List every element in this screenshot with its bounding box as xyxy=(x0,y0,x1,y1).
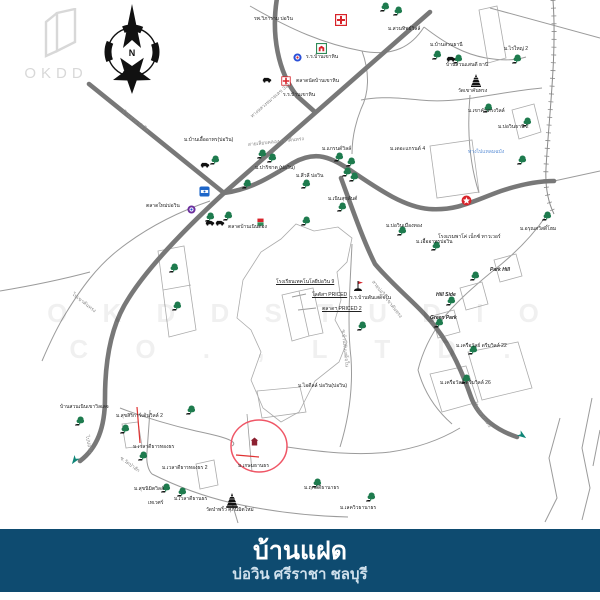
car-icon xyxy=(215,220,225,226)
site-home-icon xyxy=(250,437,259,446)
map-label: บ้านสวนเนินเขาวิลเลจ xyxy=(60,405,109,410)
map-label: ม.แกรนด์วิลล์ xyxy=(322,147,351,152)
map-label: ม.เวลาดีธานธร xyxy=(174,497,207,502)
map-label: ม.เลควิวธานาธร xyxy=(340,506,376,511)
tree-icon xyxy=(168,263,179,273)
tree-icon xyxy=(300,216,311,226)
map-label: สายเลียบคลอง-เขาคันทรง xyxy=(248,137,305,148)
tree-icon xyxy=(365,492,376,502)
map-label: ม.ไร่ใหญ่ 2 xyxy=(504,47,528,52)
map-label: บ้านสวนแสนดี ธานี xyxy=(446,63,488,68)
tree-icon xyxy=(266,153,277,163)
map-label: โลตัสฯ PRICED xyxy=(312,293,347,298)
tree-icon xyxy=(185,405,196,415)
tree-icon xyxy=(379,2,390,12)
tree-icon xyxy=(300,179,311,189)
tree-icon xyxy=(345,157,356,167)
map-label: ร.ร.บ้านเขาหิน xyxy=(283,93,315,98)
map-label: เทเวศร์ xyxy=(148,501,163,506)
tree-icon xyxy=(516,155,527,165)
tree-icon xyxy=(469,271,480,281)
map-label: โรงแรมพาโค่ เน็กซ์ ทาวเวอร์ xyxy=(438,235,501,240)
footer-banner: บ้านแฝด บ่อวิน ศรีราชา ชลบุรี xyxy=(0,529,600,592)
map-label: ม.เขาคันทรงวิลล์ xyxy=(468,109,505,114)
tree-icon xyxy=(511,54,522,64)
map-label: ม.เดอะแกรนด์ 4 xyxy=(390,147,425,152)
map-label: ไปเขาคันทรง xyxy=(70,293,96,315)
map-label: ตลาดฯ PRICED 2 xyxy=(322,307,362,312)
tree-icon xyxy=(119,424,130,434)
map-label: ไปบ่อวิน xyxy=(83,435,92,454)
tree-icon xyxy=(209,155,220,165)
arrow-teal-icon xyxy=(68,454,81,467)
map-label: ม.บ้านเอื้ออาทร(บ่อวิน) xyxy=(184,138,233,143)
tree-icon xyxy=(336,202,347,212)
map-label: ไปปลวกแดง xyxy=(472,404,492,429)
map-label: Hill Side xyxy=(436,293,456,298)
lotus-flag-icon xyxy=(352,280,364,292)
map-label: ซ.บ้านพันเสด็จใน xyxy=(339,329,348,367)
map-label: ม.เกษมธานธร xyxy=(238,464,269,469)
map-label: ม.สวนทิพย์วิลล์ xyxy=(388,27,420,32)
map-label: ร.ร.บ้านเขาหิน xyxy=(306,55,338,60)
map-label: ม.บ่อวินธานี 2 xyxy=(498,125,529,130)
map-label: ม.เวลาดีธารทองธร xyxy=(133,445,174,450)
map-label: ทางหลวงหมายเลข 331 xyxy=(250,83,291,120)
map-label: ตลาดนัดบ้านเขาหิน xyxy=(296,79,339,84)
tree-icon xyxy=(541,211,552,221)
map-label: ม.อรุณสวัสดิ์โฮม xyxy=(520,227,556,232)
temple-icon xyxy=(470,74,482,88)
map-label: บ้านสวน-บ่อวิน xyxy=(120,110,149,134)
tree-icon xyxy=(431,50,442,60)
map-label: โรงเรียนเทคโนโลยีบ่อวิน 9 xyxy=(276,280,334,285)
map-label: ม.เครือวัลย์ ดรีมวิลล์ 26 xyxy=(440,381,491,386)
map-label: Park Hill xyxy=(490,268,510,273)
map-label: ทางไปแหลมฉบัง xyxy=(468,150,504,155)
tree-icon xyxy=(241,179,252,189)
car-icon xyxy=(262,77,272,83)
star-circle-icon xyxy=(461,195,472,206)
map-label: ม.เอื้ออาทรบ่อวิน xyxy=(416,240,453,245)
ptt-icon xyxy=(199,186,210,197)
project-location: บ่อวิน ศรีราชา ชลบุรี xyxy=(232,565,367,584)
map-label: ม.เวลาดีธารทองธร 2 xyxy=(162,466,208,471)
map-label: ม.เครือวัลย์ ดรีมวิลล์ 22 xyxy=(456,344,507,349)
hospital-cross-icon xyxy=(335,14,347,26)
map-label: ม.สีวลี บ่อวิน xyxy=(296,174,323,179)
purple-donut-icon xyxy=(187,205,196,214)
tree-icon xyxy=(137,451,148,461)
car-icon xyxy=(205,220,215,226)
tree-icon xyxy=(74,416,85,426)
tree-icon xyxy=(171,301,182,311)
tree-icon xyxy=(333,152,344,162)
map-label: ม.สุขสิริการ์เด้นวิลล์ 2 xyxy=(116,414,163,419)
map-label: วัดเขาคันทรง xyxy=(458,89,487,94)
arrow-teal-icon xyxy=(516,429,529,442)
blue-donut-icon xyxy=(293,53,302,62)
map-label: ม.เนินสุขสันต์ xyxy=(328,197,357,202)
map-label: ม.บ่อวินเมืองทอง xyxy=(386,224,422,229)
map-label: ม.ปาริชาต (บ่อวิน) xyxy=(255,166,295,171)
map-label: ม.ฤกษ์ดีธานาธร xyxy=(304,486,339,491)
map-label: ม.สุขนิมิตวิลล์ xyxy=(134,487,164,492)
map-label: ตลาดบ้านเนินตอง xyxy=(228,225,267,230)
map-label: รพ.วิภาราม บ่อวิน xyxy=(254,17,293,22)
map-label: ม.บ้านสวนธานี xyxy=(430,43,463,48)
marker-layer: รพ.วิภาราม บ่อวินม.สวนทิพย์วิลล์ร.ร.บ้าน… xyxy=(0,0,600,527)
car-icon xyxy=(200,162,210,168)
green-box-icon xyxy=(316,43,327,54)
tree-icon xyxy=(356,321,367,331)
map-area: รพ.วิภาราม บ่อวินม.สวนทิพย์วิลล์ร.ร.บ้าน… xyxy=(0,0,600,527)
map-label: ม.ไอดีลล์ บ่อวิน(บ่อวิน) xyxy=(298,384,347,389)
map-label: ตลาดใหม่บ่อวิน xyxy=(146,204,180,209)
tree-icon xyxy=(392,6,403,16)
map-poster: OKDD N xyxy=(0,0,600,600)
map-label: วัดป่าพริ้ว ศุภนิมิตใหม่ xyxy=(206,508,254,513)
map-label: Green Park xyxy=(430,316,457,321)
project-title: บ้านแฝด xyxy=(253,537,347,565)
tree-icon xyxy=(348,172,359,182)
